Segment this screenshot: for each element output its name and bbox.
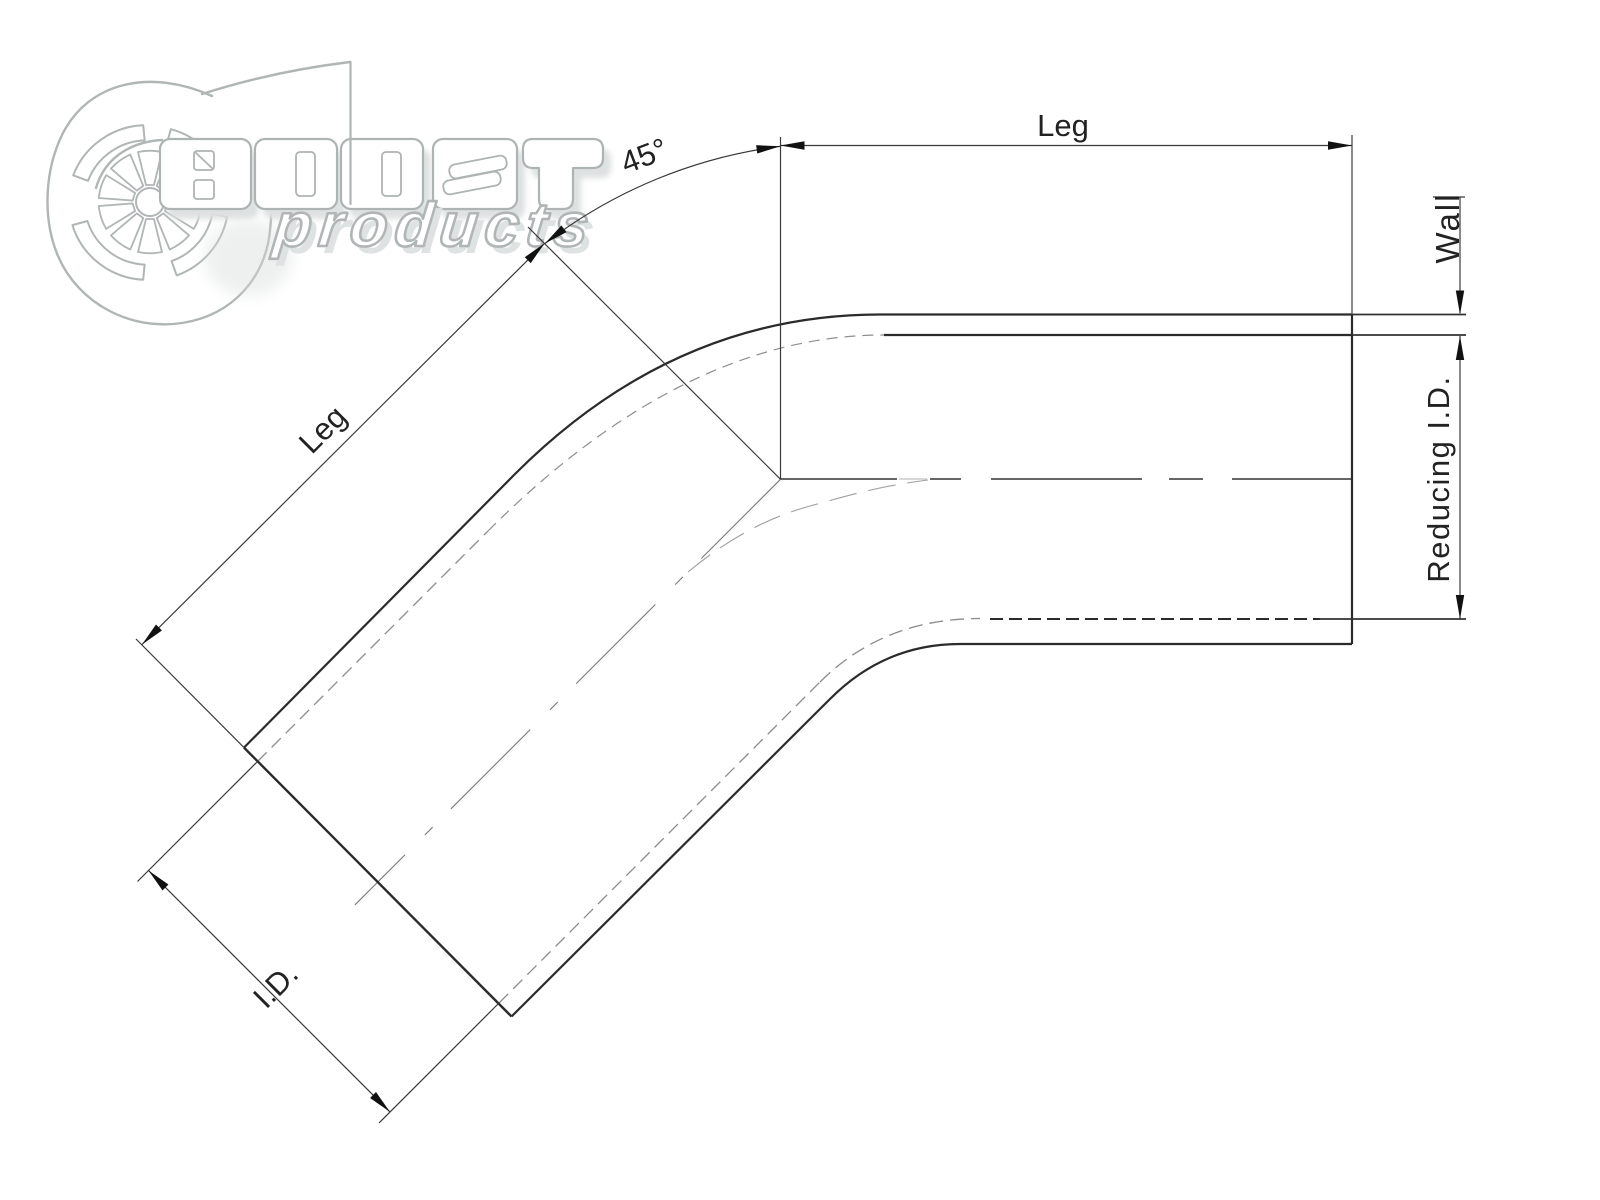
svg-text:products: products [269, 191, 599, 260]
svg-text:Leg: Leg [1037, 108, 1089, 143]
svg-text:Wall: Wall [1429, 193, 1466, 264]
svg-text:Reducing I.D.: Reducing I.D. [1421, 375, 1456, 582]
